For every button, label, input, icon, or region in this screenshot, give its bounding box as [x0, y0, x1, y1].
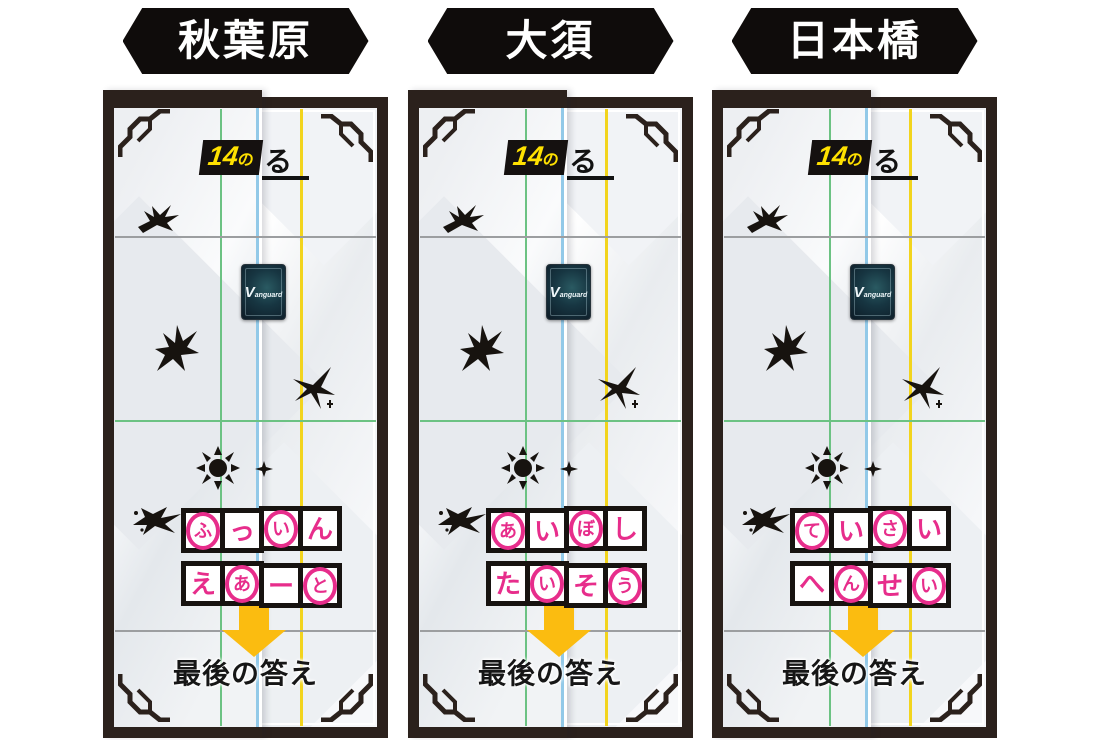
step-particle: の: [542, 152, 560, 169]
kana-box-pair: ぼ し: [564, 506, 647, 551]
column-akihabara: 秋葉原: [103, 0, 388, 740]
kana-cell: い: [834, 513, 868, 548]
kana-cell: い: [530, 513, 564, 548]
answer-row: て い さ い: [790, 508, 951, 553]
kana-char: ふ: [186, 512, 220, 550]
final-answer-label: 最後の答え: [712, 652, 997, 692]
kana-char: い: [534, 518, 560, 544]
step-kana: る: [569, 140, 597, 180]
down-arrow-icon: [222, 605, 286, 657]
kana-box-pair: た い: [486, 561, 569, 606]
kana-cell: た: [491, 566, 525, 601]
grid-line-vertical-yellow: [605, 109, 608, 726]
emblem-sun-icon: [196, 446, 240, 490]
emblem-spark-icon: [560, 461, 578, 477]
kana-cell: し: [608, 511, 642, 546]
kana-cell: ふ: [186, 513, 220, 548]
emblem-branch-icon: [440, 203, 488, 237]
step-number: 14: [815, 141, 849, 171]
step-kana: る: [264, 140, 292, 180]
emblem-sun-icon: [501, 446, 545, 490]
emblem-branch-icon: [135, 203, 183, 237]
arrow-shaft: [544, 605, 574, 630]
emblem-bird-icon: [131, 505, 185, 541]
emblem-bird-icon: [740, 505, 794, 541]
mat-content: 14のる Vanguard ふ っ い ん: [103, 97, 388, 738]
kana-char: し: [612, 516, 638, 542]
emblem-branch-icon: [744, 203, 792, 237]
vanguard-card-back: Vanguard: [850, 264, 895, 320]
grid-line-horizontal-green: [724, 420, 985, 422]
step-number-box: 14の: [808, 140, 872, 175]
kana-cell: っ: [225, 513, 259, 548]
kana-char: ん: [307, 516, 333, 542]
emblem-flourish-icon: [456, 321, 506, 375]
kana-char: い: [264, 510, 298, 548]
grid-line-horizontal-green: [115, 420, 376, 422]
final-answer-label: 最後の答え: [103, 652, 388, 692]
kana-cell: そ: [569, 568, 603, 603]
kana-cell: あ: [491, 513, 525, 548]
kana-char: う: [608, 567, 642, 605]
step-kana: る: [873, 140, 901, 180]
card-inner-border: [245, 268, 282, 316]
kana-char: そ: [573, 573, 599, 599]
playmat: 14のる Vanguard あ い ぼ し: [408, 97, 693, 738]
emblem-flourish-icon: [760, 321, 810, 375]
kana-cell: い: [264, 511, 298, 546]
playmat: 14のる Vanguard ふ っ い ん: [103, 97, 388, 738]
mat-content: 14のる Vanguard あ い ぼ し: [408, 97, 693, 738]
grid-line-vertical-yellow: [909, 109, 912, 726]
location-label: 大須: [505, 20, 595, 62]
kana-box-pair: て い: [790, 508, 873, 553]
mat-content: 14のる Vanguard て い さ い: [712, 97, 997, 738]
step-number-box: 14の: [504, 140, 568, 175]
vanguard-card-back: Vanguard: [546, 264, 591, 320]
kana-box-pair: ふ っ: [181, 508, 264, 553]
kana-cell: へ: [795, 566, 829, 601]
kana-box-pair: へ ん: [790, 561, 873, 606]
kana-box-pair: い ん: [259, 506, 342, 551]
final-answer-label: 最後の答え: [408, 652, 693, 692]
kana-char: せ: [877, 573, 903, 599]
card-inner-border: [550, 268, 587, 316]
card-inner-border: [854, 268, 891, 316]
step-number-box: 14の: [199, 140, 263, 175]
location-banner: 大須: [428, 8, 674, 74]
step-underline: [871, 176, 918, 180]
emblem-spark-icon: [864, 461, 882, 477]
kana-cell: い: [912, 568, 946, 603]
emblem-star-icon: [291, 365, 337, 413]
column-osu: 大須: [408, 0, 693, 740]
step-label: 14のる: [810, 140, 901, 180]
kana-cell: て: [795, 513, 829, 548]
kana-box-pair: え あ: [181, 561, 264, 606]
down-arrow-icon: [527, 605, 591, 657]
emblem-star-icon: [596, 365, 642, 413]
down-arrow-icon: [831, 605, 895, 657]
playmat: 14のる Vanguard て い さ い: [712, 97, 997, 738]
emblem-star-icon: [900, 365, 946, 413]
corner-ornament-icon: [118, 109, 172, 163]
kana-char: さ: [873, 510, 907, 548]
kana-cell: と: [303, 568, 337, 603]
kana-cell: ぼ: [569, 511, 603, 546]
kana-char: ぼ: [569, 510, 603, 548]
kana-char: い: [838, 518, 864, 544]
location-banner: 日本橋: [732, 8, 978, 74]
answer-row: え あ ー と: [181, 561, 342, 606]
emblem-spark-icon: [255, 461, 273, 477]
answer-row: へ ん せ い: [790, 561, 951, 606]
vanguard-card-back: Vanguard: [241, 264, 286, 320]
kana-box-pair: さ い: [868, 506, 951, 551]
kana-char: ー: [268, 573, 294, 599]
column-nipponbashi: 日本橋: [712, 0, 997, 740]
emblem-flourish-icon: [151, 321, 201, 375]
grid-line-horizontal-green: [420, 420, 681, 422]
step-underline: [262, 176, 309, 180]
emblem-sun-icon: [805, 446, 849, 490]
step-number: 14: [511, 141, 545, 171]
kana-char: ん: [834, 565, 868, 603]
kana-cell: ん: [834, 566, 868, 601]
kana-char: て: [795, 512, 829, 550]
kana-cell: せ: [873, 568, 907, 603]
kana-char: え: [190, 571, 216, 597]
step-particle: の: [846, 152, 864, 169]
corner-ornament-icon: [727, 109, 781, 163]
step-label: 14のる: [506, 140, 597, 180]
answer-row: た い そ う: [486, 561, 647, 606]
step-label: 14のる: [201, 140, 292, 180]
corner-ornament-icon: [319, 114, 373, 168]
kana-char: っ: [229, 518, 255, 544]
corner-ornament-icon: [624, 114, 678, 168]
step-number: 14: [206, 141, 240, 171]
kana-char: た: [495, 571, 521, 597]
location-label: 日本橋: [787, 20, 922, 62]
kana-cell: あ: [225, 566, 259, 601]
kana-cell: う: [608, 568, 642, 603]
grid-line-vertical-yellow: [300, 109, 303, 726]
kana-cell: え: [186, 566, 220, 601]
corner-ornament-icon: [423, 109, 477, 163]
arrow-shaft: [848, 605, 878, 630]
puzzle-sheet: 秋葉原: [0, 0, 1100, 740]
step-underline: [567, 176, 614, 180]
location-banner: 秋葉原: [123, 8, 369, 74]
answer-row: ふ っ い ん: [181, 508, 342, 553]
kana-cell: ー: [264, 568, 298, 603]
kana-char: い: [530, 565, 564, 603]
kana-char: あ: [225, 565, 259, 603]
answer-row: あ い ぼ し: [486, 508, 647, 553]
kana-cell: さ: [873, 511, 907, 546]
kana-box-pair: ー と: [259, 563, 342, 608]
kana-box-pair: あ い: [486, 508, 569, 553]
kana-cell: い: [912, 511, 946, 546]
location-label: 秋葉原: [178, 20, 313, 62]
step-particle: の: [237, 152, 255, 169]
kana-char: と: [303, 567, 337, 605]
kana-cell: い: [530, 566, 564, 601]
kana-box-pair: そ う: [564, 563, 647, 608]
kana-box-pair: せ い: [868, 563, 951, 608]
kana-char: へ: [799, 571, 825, 597]
kana-char: あ: [491, 512, 525, 550]
emblem-bird-icon: [436, 505, 490, 541]
kana-char: い: [916, 516, 942, 542]
kana-char: い: [912, 567, 946, 605]
arrow-shaft: [239, 605, 269, 630]
corner-ornament-icon: [928, 114, 982, 168]
kana-cell: ん: [303, 511, 337, 546]
